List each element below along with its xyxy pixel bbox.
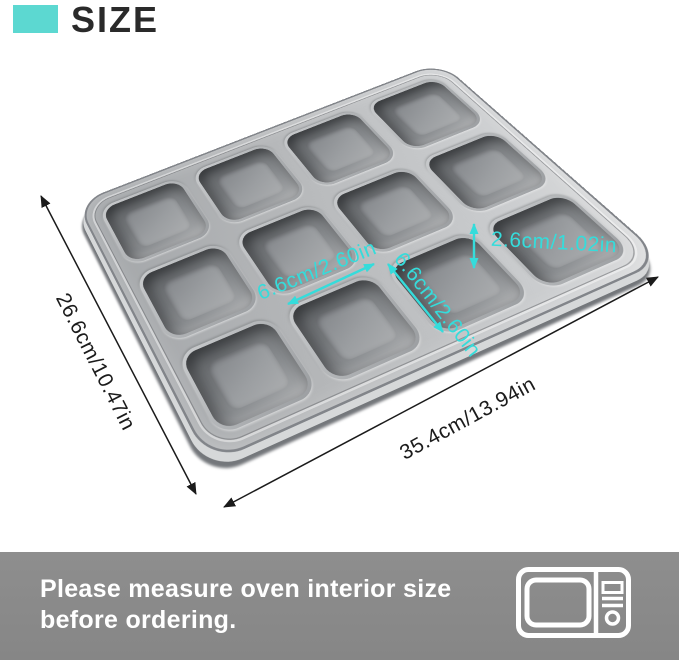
notice-line-2: before ordering. [40,606,237,634]
cavity-floor [303,125,377,174]
pan-width-label: 26.6cm/10.47in [50,289,140,434]
microwave-icon [516,567,631,638]
cavity-floor [389,91,464,137]
baking-pan [76,62,666,465]
accent-swatch [13,5,58,33]
cavity [282,111,395,186]
notice-banner: Please measure oven interior sizebefore … [0,552,679,660]
cavity-floor [446,146,529,199]
cavity [138,244,258,340]
pan-length-label: 35.4cm/13.94in [396,373,540,466]
cavity [181,320,314,432]
cavity [368,79,483,150]
size-infographic: SIZE 26.6cm/10.47in 35.4cm/13.94in 6.6cm… [0,0,679,660]
notice-text: Please measure oven interior sizebefore … [40,574,452,636]
cavity-floor [354,183,436,239]
cavity-floor [214,159,287,210]
cavity [331,168,456,254]
cavity-floor [121,195,192,249]
notice-line-1: Please measure oven interior size [40,575,452,603]
cavity-floor [205,339,292,412]
cavity [287,276,423,381]
cavity-floor [312,295,401,363]
cavity [194,145,305,224]
cavity-floor [160,261,239,323]
page-title: SIZE [71,1,159,39]
cavity [102,180,211,263]
